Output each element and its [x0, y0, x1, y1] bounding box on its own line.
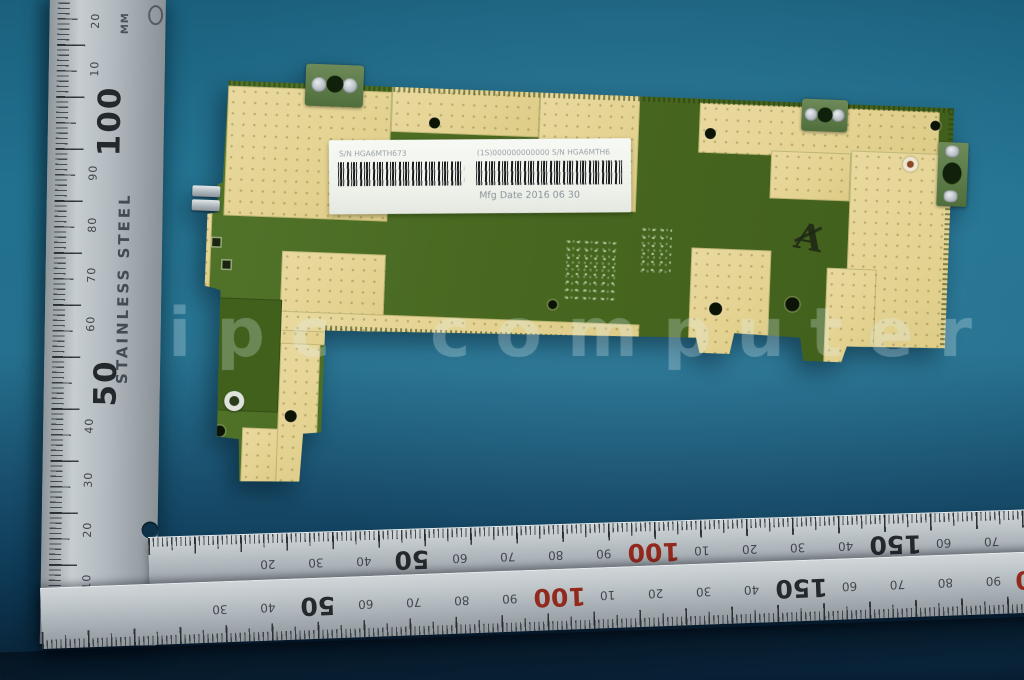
ruler-number: 40: [744, 583, 760, 598]
bracket-hole: [326, 75, 344, 93]
ruler-number: 60: [936, 536, 952, 550]
ruler-number: 10: [600, 588, 616, 603]
ruler-number: 60: [842, 579, 858, 594]
ruler-number: 30: [82, 472, 95, 488]
ruler-number: 90: [502, 592, 518, 607]
ruler-number: 10: [88, 61, 101, 77]
mounting-block: [936, 142, 968, 207]
ruler-number: 40: [83, 418, 96, 434]
solder-ring: [804, 108, 817, 121]
ruler-number: 30: [790, 540, 806, 554]
pcb-beige-zone: [769, 150, 851, 201]
pcb-beige-zone: [240, 427, 278, 484]
serial-number-right: (1S)000000000000 S/N HGA6MTH6: [477, 147, 610, 157]
ruler-number: 90: [87, 165, 100, 181]
barcode: [338, 161, 464, 186]
ruler-number: 20: [260, 557, 276, 571]
ruler-number: 80: [454, 593, 470, 608]
ruler-material-text: STAINLESS STEEL: [113, 192, 134, 384]
solder-ring: [342, 78, 358, 94]
mfg-date-text: Mfg Date 2016 06 30: [479, 190, 580, 202]
ruler-number: 100: [627, 537, 680, 568]
barcode: [476, 160, 622, 185]
bracket-hole: [817, 107, 833, 123]
ruler-number: 80: [86, 217, 99, 233]
barcode-label: S/N HGA6MTH673 (1S)000000000000 S/N HGA6…: [329, 138, 632, 214]
ruler-number: 60: [358, 597, 374, 612]
shield-bracket: [305, 64, 365, 108]
ruler-number: 200: [1015, 564, 1024, 595]
ruler-number: 20: [81, 522, 94, 538]
ruler-number: 50: [300, 591, 336, 621]
vertical-ruler-numbers: 2010100908070605040302010: [40, 0, 166, 646]
smd-pad-cluster: [638, 225, 672, 274]
ruler-number: 30: [212, 602, 228, 617]
ruler-number: 20: [648, 586, 664, 601]
watermark-text: ipc computer: [168, 294, 997, 373]
ruler-number: 30: [308, 556, 324, 570]
ruler-number: 80: [938, 576, 954, 591]
solder-blob: [945, 145, 959, 158]
solder-blob: [943, 190, 957, 203]
mounting-hole: [942, 162, 962, 185]
solder-ring: [311, 77, 327, 93]
ruler-unit-text: MM: [120, 12, 131, 34]
shield-tab: [801, 99, 848, 133]
ruler-number: 70: [890, 577, 906, 592]
serial-number-left: S/N HGA6MTH673: [339, 149, 407, 158]
ruler-number: 70: [984, 534, 1000, 548]
ruler-number: 150: [775, 573, 828, 604]
photo-scene: 2010100908070605040302010 STAINLESS STEE…: [0, 0, 1024, 680]
ruler-number: 50: [394, 545, 430, 575]
ruler-number: 20: [742, 542, 758, 556]
ruler-number: 40: [356, 554, 372, 568]
ruler-number: 10: [694, 543, 710, 557]
ruler-number: 90: [985, 574, 1001, 589]
solder-pad: [222, 260, 230, 268]
ruler-number: 80: [548, 548, 564, 562]
ruler-number: 90: [596, 546, 612, 560]
ruler-number: 60: [452, 551, 468, 565]
solder-pad: [212, 238, 220, 246]
ruler-number: 70: [406, 595, 422, 610]
vertical-ruler: 2010100908070605040302010 STAINLESS STEE…: [40, 0, 166, 646]
pcb-edge-strip: [200, 213, 213, 289]
ruler-number: 100: [91, 85, 128, 156]
ruler-number: 40: [838, 539, 854, 553]
ruler-number: 20: [89, 13, 102, 29]
connector-tab: [192, 185, 220, 197]
solder-ring: [831, 109, 844, 122]
via-hole: [214, 425, 225, 436]
ruler-number: 70: [85, 267, 98, 283]
connector-tab: [192, 199, 220, 211]
ruler-number: 70: [500, 549, 516, 563]
ruler-number: 30: [696, 584, 712, 599]
ruler-number: 40: [260, 600, 276, 615]
ruler-number: 60: [84, 316, 97, 332]
ruler-number: 100: [533, 582, 586, 613]
